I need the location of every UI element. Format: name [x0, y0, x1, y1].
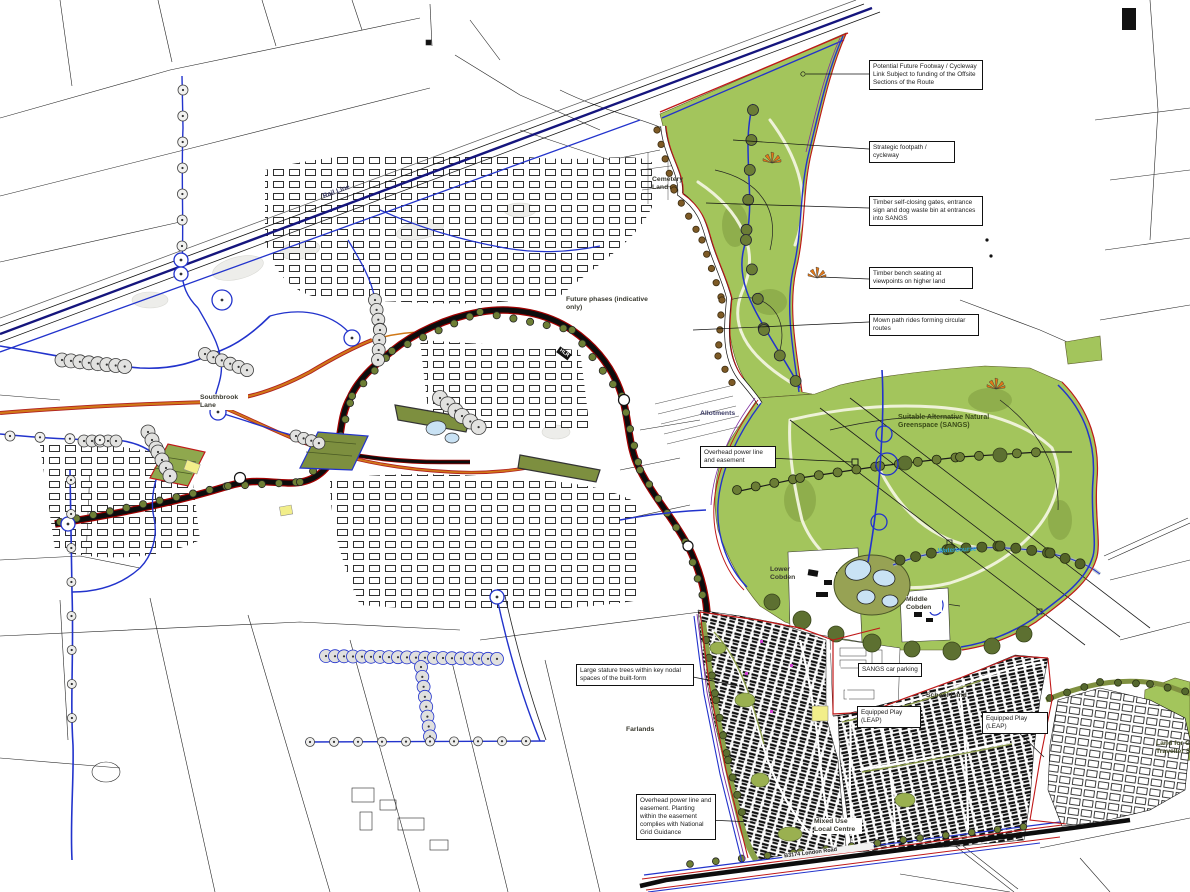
callout-overhead-easement: Overhead power line and easement — [700, 446, 776, 468]
callout-large-trees: Large stature trees within key nodal spa… — [576, 664, 694, 686]
label-school-land: School Land — [926, 692, 980, 700]
callout-overhead-guidance: Overhead power line and easement. Planti… — [636, 794, 716, 840]
path-parallel — [505, 596, 546, 740]
callout-timber-bench: Timber bench seating at viewpoints on hi… — [869, 267, 973, 289]
play-patches-west — [184, 460, 293, 516]
viewpoint-icon — [808, 267, 826, 278]
label-middle-cobden: Middle Cobden — [906, 596, 942, 612]
map-edge-mark — [1122, 8, 1136, 30]
callout-strategic-footpath: Strategic footpath / cycleway — [869, 141, 955, 163]
future-phase-housing — [40, 152, 655, 610]
callout-sangs-parking: SANGS car parking — [858, 663, 922, 677]
label-sangs: Suitable Alternative Natural Greenspace … — [898, 414, 1000, 431]
label-future-phases: Future phases (indicative only) — [566, 296, 656, 312]
label-mixed-use: Mixed Use Local Centre — [814, 818, 862, 834]
label-traveller-land: Land for G Traveller S — [1156, 740, 1190, 756]
callout-mown-paths: Mown path rides forming circular routes — [869, 314, 979, 336]
label-cemetery-land: Cemetery Land — [652, 176, 696, 192]
label-lower-cobden: Lower Cobden — [770, 566, 806, 582]
play-area-yellow — [812, 706, 828, 721]
label-southbrook-lane: Southbrook Lane — [200, 394, 248, 410]
point-marks — [985, 238, 992, 257]
label-allotments: Allotments — [700, 410, 752, 418]
map-canvas — [0, 0, 1190, 892]
callout-future-footway: Potential Future Footway / Cycleway Link… — [869, 60, 983, 90]
callout-leap-east: Equipped Play (LEAP) — [982, 712, 1048, 734]
callout-timber-gates: Timber self-closing gates, entrance sign… — [869, 196, 983, 226]
masterplan-map: Rail Line Cemetery Land Future phases (i… — [0, 0, 1190, 892]
label-farlands: Farlands — [626, 726, 668, 734]
callout-leap-west: Equipped Play (LEAP) — [857, 706, 921, 728]
